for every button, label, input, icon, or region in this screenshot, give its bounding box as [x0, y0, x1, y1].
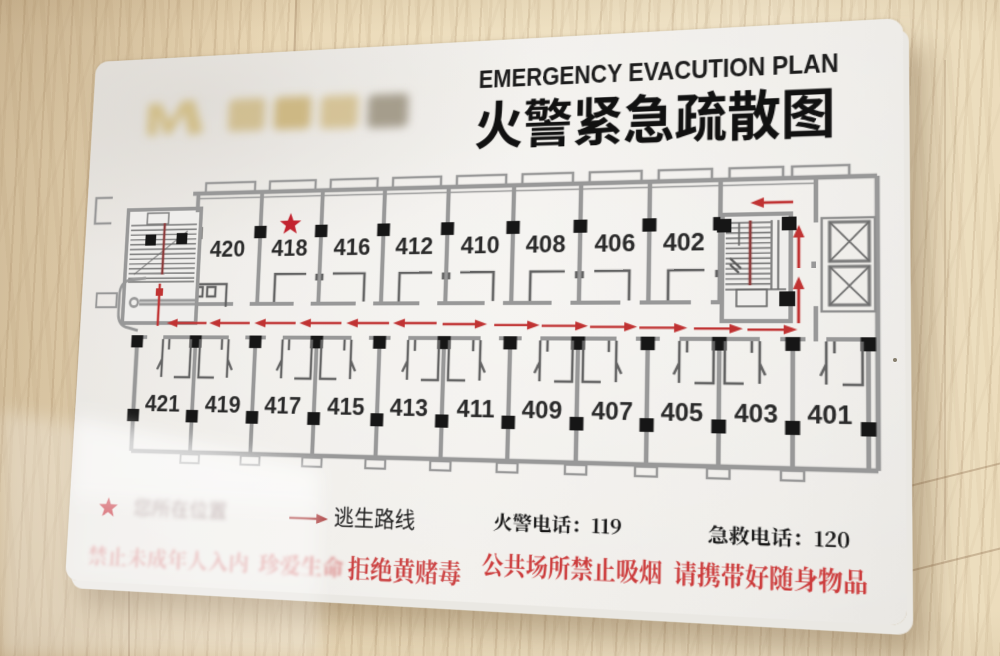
svg-text:407: 407 — [591, 399, 633, 426]
svg-text:416: 416 — [333, 236, 371, 261]
svg-text:413: 413 — [389, 396, 428, 422]
svg-text:402: 402 — [663, 230, 705, 257]
svg-text:410: 410 — [460, 233, 499, 259]
svg-text:411: 411 — [456, 397, 495, 424]
svg-text:406: 406 — [594, 231, 635, 258]
svg-text:420: 420 — [209, 238, 245, 263]
svg-text:418: 418 — [271, 237, 308, 262]
svg-text:403: 403 — [734, 401, 778, 429]
svg-text:409: 409 — [521, 398, 562, 425]
svg-text:412: 412 — [395, 235, 434, 261]
svg-text:419: 419 — [204, 393, 241, 418]
svg-text:417: 417 — [264, 394, 301, 420]
svg-text:421: 421 — [144, 392, 180, 417]
svg-text:401: 401 — [807, 402, 852, 431]
svg-text:408: 408 — [525, 232, 565, 258]
svg-text:EMERGENCY EVACUTION PLAN: EMERGENCY EVACUTION PLAN — [478, 49, 838, 94]
svg-text:405: 405 — [661, 400, 704, 428]
svg-text:415: 415 — [327, 395, 365, 421]
